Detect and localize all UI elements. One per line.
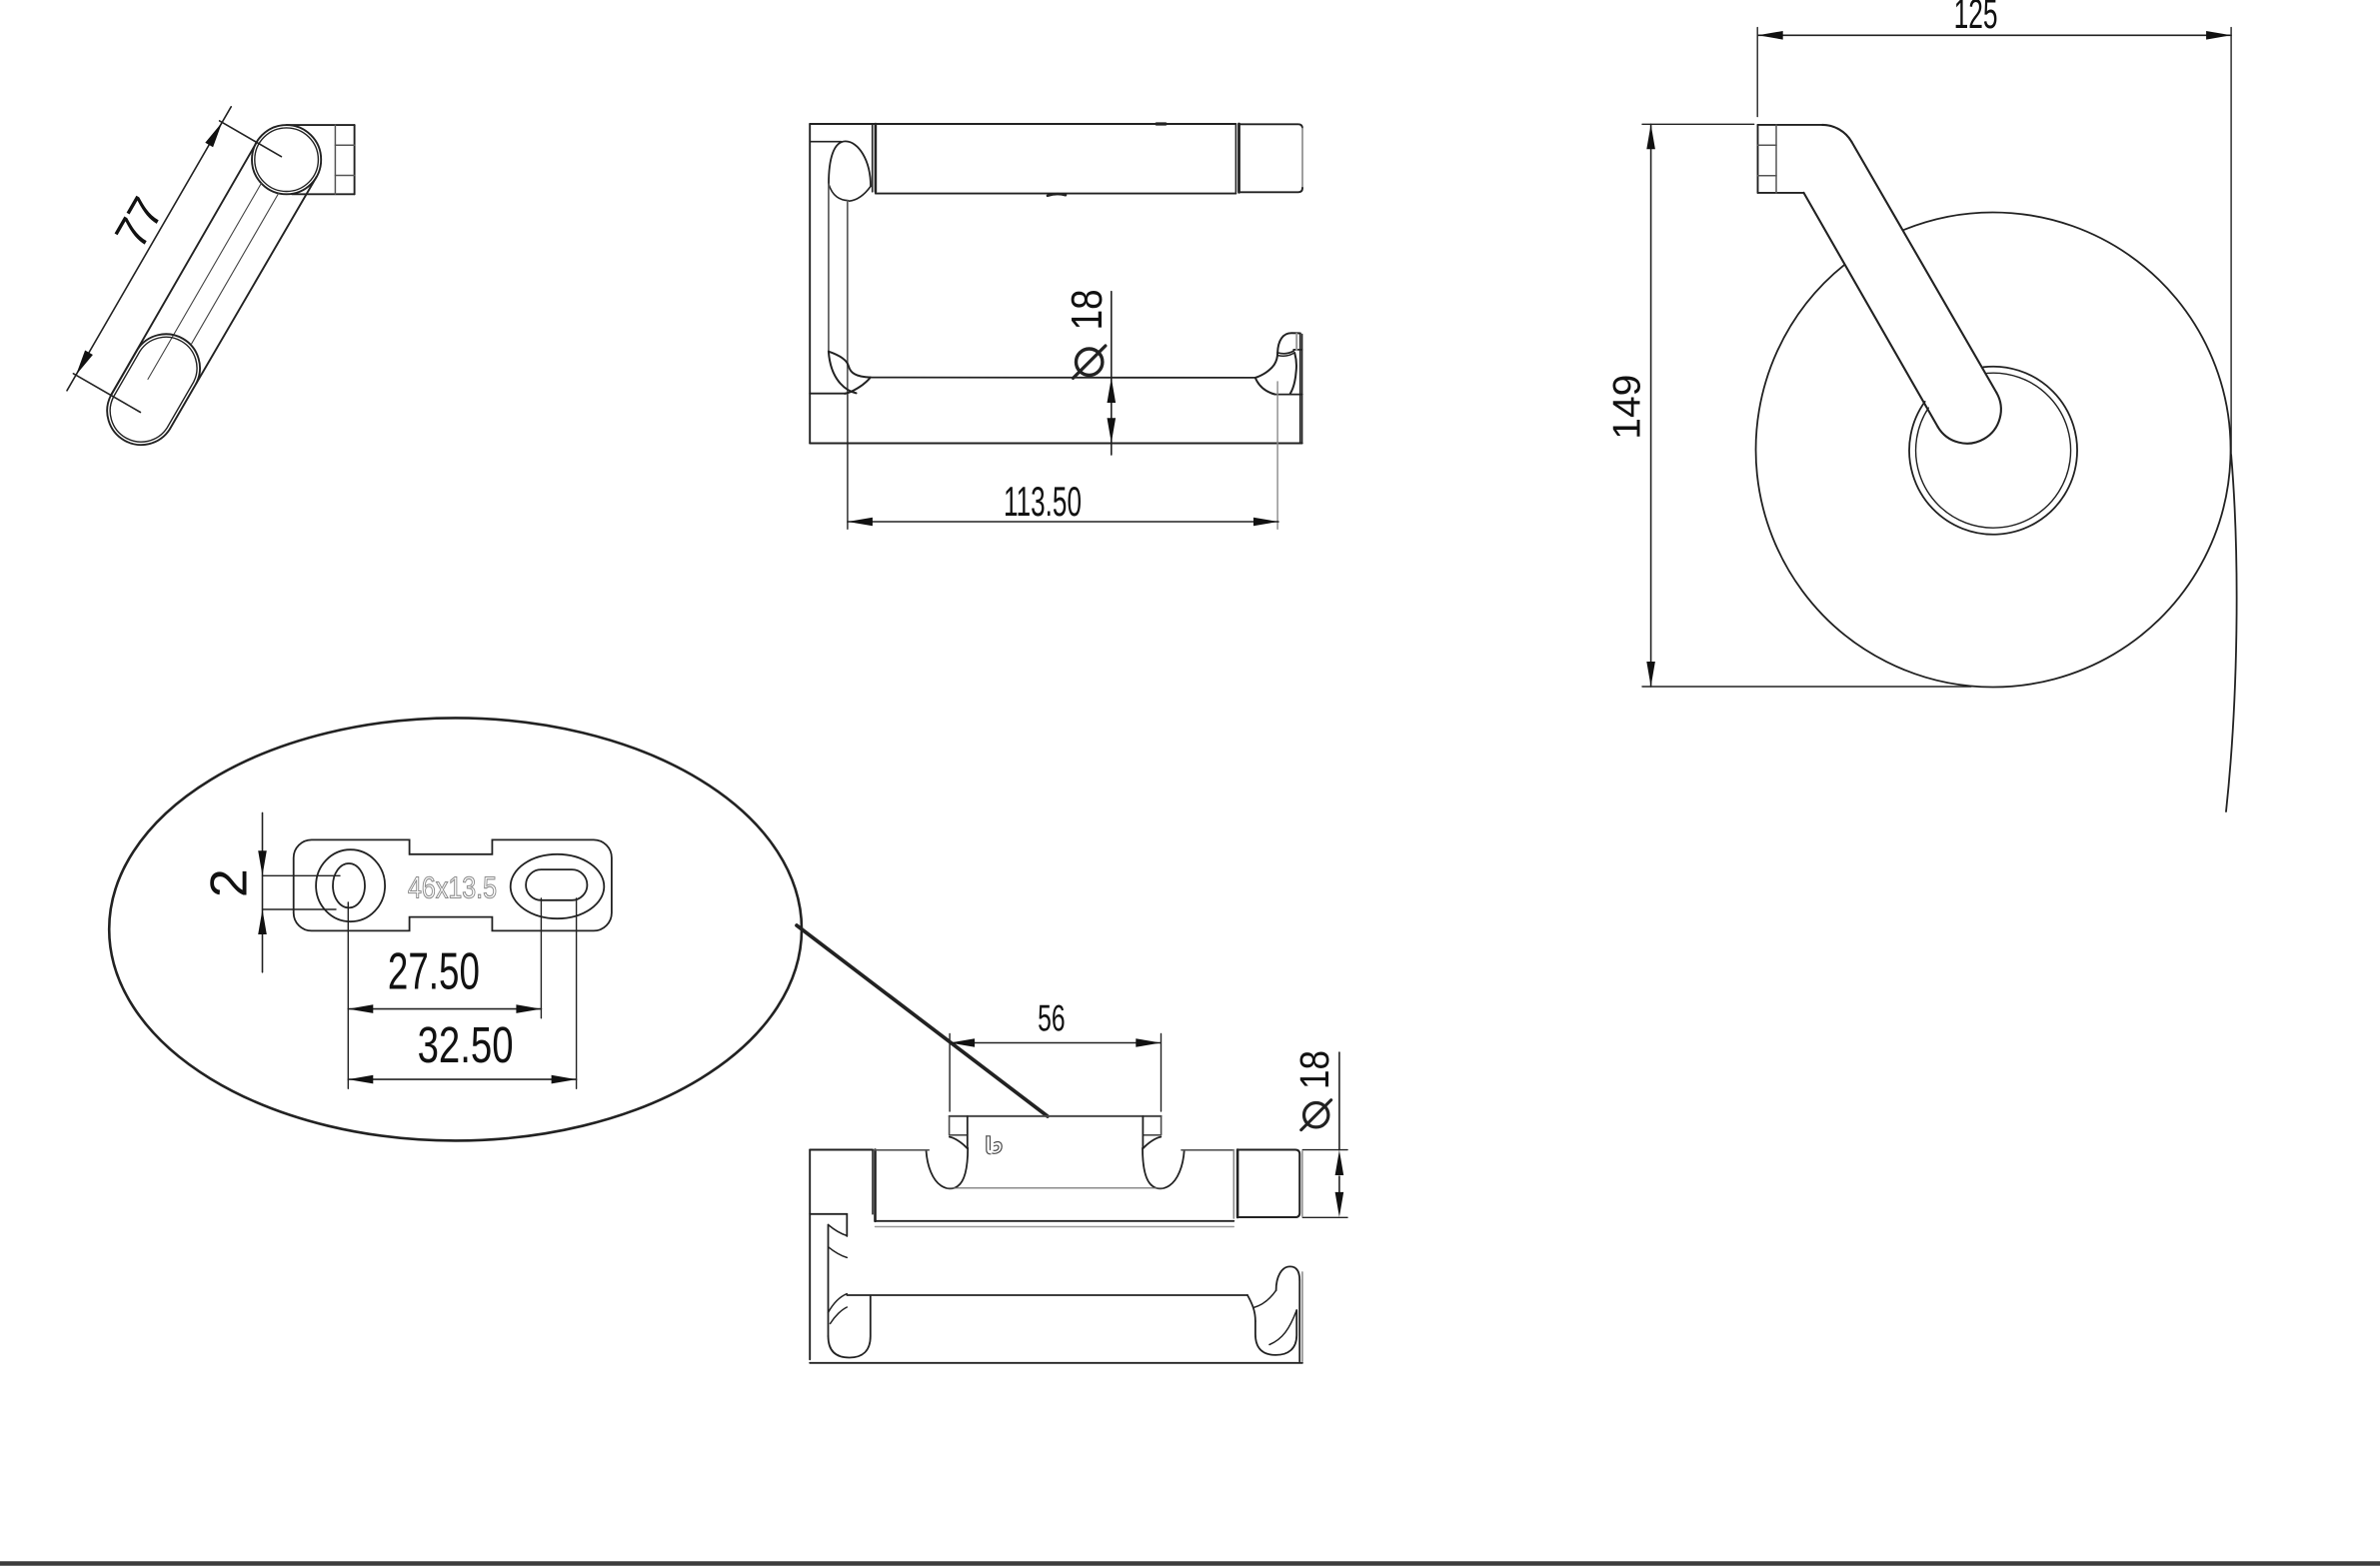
svg-text:18: 18 — [1063, 289, 1112, 330]
svg-text:77: 77 — [104, 189, 173, 257]
svg-text:32.50: 32.50 — [418, 1016, 514, 1073]
svg-text:125: 125 — [1954, 0, 1998, 37]
svg-text:113.50: 113.50 — [1004, 478, 1082, 525]
svg-text:18: 18 — [1291, 1050, 1337, 1089]
svg-text:2: 2 — [201, 868, 259, 897]
svg-text:27.50: 27.50 — [388, 943, 480, 1001]
svg-text:46x13.5: 46x13.5 — [408, 870, 497, 905]
svg-text:149: 149 — [1606, 375, 1649, 440]
svg-text:56: 56 — [1038, 998, 1066, 1039]
